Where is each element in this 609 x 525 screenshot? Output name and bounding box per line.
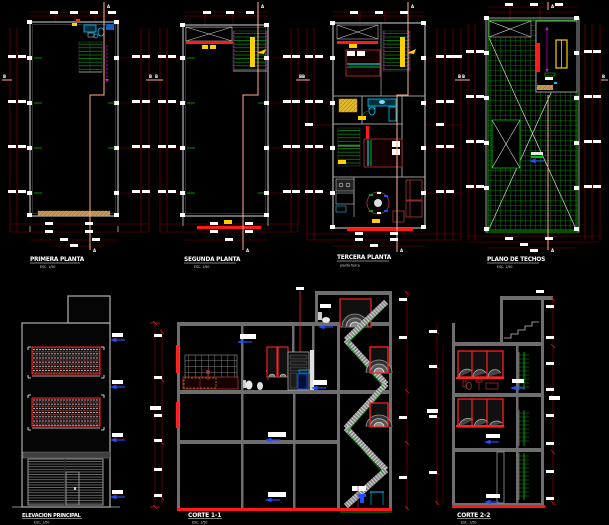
section-a-bottom: A [551, 248, 555, 253]
dining-table [367, 192, 389, 214]
window-upper [28, 347, 104, 378]
door-handle [74, 487, 76, 490]
stairs [79, 42, 102, 72]
room-tags [202, 45, 232, 224]
section-a-top: A [107, 4, 111, 9]
plan-techos-title: PLANO DE TECHOS [487, 257, 545, 263]
section-a-top: A [261, 4, 265, 9]
section-b-right: B [149, 74, 152, 79]
plan-tercera: A A B B TERCERA PLANTA planta tipica [300, 2, 466, 268]
section-a-top: A [411, 4, 415, 9]
elevacion-title: ELEVACION PRINCIPAL [22, 513, 82, 519]
roof-void-center [492, 120, 520, 168]
double-height-void [186, 27, 232, 41]
penthouse-stair [504, 322, 539, 338]
plan-segunda: A A B B SEGUNDA PLANTA ESC. 1/50 [153, 2, 306, 269]
window-lower [28, 395, 104, 430]
level1 [484, 452, 529, 504]
plan-segunda-scale: ESC. 1/50 [194, 265, 209, 269]
section-a-bottom: A [400, 248, 404, 253]
base-line [452, 505, 545, 508]
roof-void-topleft [489, 21, 531, 37]
plan-tercera-title: TERCERA PLANTA [337, 255, 392, 261]
left-dimension [154, 330, 164, 505]
door-marks [34, 58, 115, 193]
bathroom-fixtures [84, 24, 114, 38]
corte1-title: CORTE 1-1 [188, 512, 221, 519]
columns [27, 20, 119, 217]
corte-1-1: CORTE 1-1 ESC. 1/50 [154, 287, 409, 525]
bathroom-section [243, 369, 270, 390]
elevacion-principal: ELEVACION PRINCIPAL ESC. 1/50 [12, 296, 161, 525]
cad-canvas: A A B B PRIMERA PLANTA ESC. 1/50 [0, 0, 609, 525]
section-a-top: A [551, 4, 555, 9]
stair-windows [366, 347, 392, 427]
level-markers [110, 333, 125, 499]
window-section [267, 347, 288, 377]
bed-1 [346, 50, 380, 76]
garage-door [23, 452, 110, 505]
balcony-edge [347, 228, 413, 231]
corte-2-2: CORTE 2-2 ESC. 1/50 [427, 290, 560, 525]
section-b-left: B [462, 74, 465, 79]
balcony-edge [197, 226, 261, 229]
dimension-lines [160, 12, 298, 240]
stair-column [250, 37, 255, 67]
plan-primera-title: PRIMERA PLANTA [30, 257, 85, 263]
plan-tercera-scale: planta tipica [340, 264, 360, 268]
level-marker [529, 152, 544, 163]
cad-sheet: A A B B PRIMERA PLANTA ESC. 1/50 [0, 0, 609, 525]
double-height-void [337, 25, 378, 39]
plan-techos-scale: ESC. 1/50 [497, 265, 512, 269]
elevacion-scale: ESC. 1/50 [34, 521, 49, 525]
dimension-labels [158, 11, 300, 241]
window-level2 [456, 399, 504, 427]
plan-techos: A A B B PLANO DE TECHOS ESC. 1/50 [461, 2, 608, 269]
plan-primera-scale: ESC. 1/50 [40, 265, 55, 269]
right-dimension [399, 291, 409, 510]
corte2-title: CORTE 2-2 [457, 512, 490, 519]
kitchen [336, 177, 354, 217]
window-level3 [456, 351, 504, 379]
plan-segunda-title: SEGUNDA PLANTA [184, 257, 241, 263]
red-beam [186, 41, 233, 44]
bathroom [362, 99, 396, 121]
bath-fixtures-level3 [463, 380, 498, 390]
left-dimension [427, 323, 443, 505]
right-dimension [536, 290, 560, 505]
door-marks [187, 58, 265, 193]
section-b-left: B [155, 74, 158, 79]
red-beam [337, 41, 378, 44]
base-line [177, 508, 392, 511]
plan-primera: A A B B PRIMERA PLANTA ESC. 1/50 [2, 2, 156, 269]
bed-2 [364, 139, 402, 167]
stair-penthouse [536, 21, 577, 92]
section-b-left: B [3, 74, 6, 79]
corte1-scale: ESC. 1/50 [192, 521, 207, 525]
ladder-level2 [519, 410, 529, 446]
section-a-bottom: A [93, 248, 97, 253]
section-b-right: B [458, 74, 461, 79]
corte2-scale: ESC. 1/50 [461, 521, 476, 525]
stairs [233, 31, 267, 71]
ladder-level3 [519, 352, 529, 390]
section-b-left: B [302, 74, 305, 79]
stairs [383, 31, 416, 71]
walls [30, 22, 118, 232]
section-b-right: B [602, 74, 605, 79]
closet [339, 99, 357, 112]
section-a-bottom: A [246, 248, 250, 253]
